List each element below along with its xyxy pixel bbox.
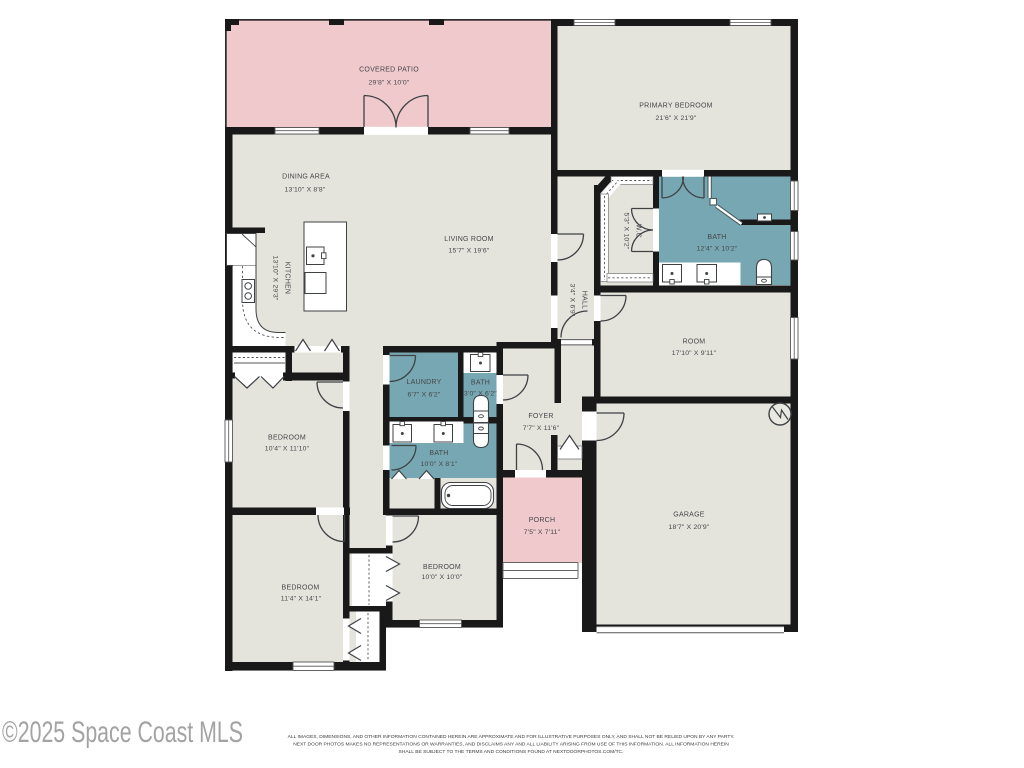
svg-text:BATH: BATH <box>471 380 490 387</box>
svg-text:10'0" X 8'1": 10'0" X 8'1" <box>420 461 457 468</box>
svg-text:10'4" X 11'10": 10'4" X 11'10" <box>265 446 310 453</box>
svg-text:SHALL BE SUBJECT TO THE TERMS: SHALL BE SUBJECT TO THE TERMS AND CONDIT… <box>399 749 624 755</box>
svg-text:7'7" X 11'6": 7'7" X 11'6" <box>523 425 560 432</box>
svg-text:PORCH: PORCH <box>529 517 556 524</box>
svg-text:7'5" X 7'11": 7'5" X 7'11" <box>524 529 561 536</box>
svg-text:KITCHEN: KITCHEN <box>284 262 291 294</box>
svg-text:COVERED PATIO: COVERED PATIO <box>359 67 419 74</box>
svg-text:NEXT DOOR PHOTOS MAKES NO REPR: NEXT DOOR PHOTOS MAKES NO REPRESENTATION… <box>293 742 729 748</box>
svg-text:13'10" X 8'8": 13'10" X 8'8" <box>284 187 325 194</box>
svg-text:FOYER: FOYER <box>528 413 553 420</box>
svg-text:LIVING ROOM: LIVING ROOM <box>444 236 493 243</box>
svg-text:DINING AREA: DINING AREA <box>282 174 330 181</box>
svg-text:3'0" X 6'2": 3'0" X 6'2" <box>464 391 497 398</box>
svg-text:21'6" X 21'9": 21'6" X 21'9" <box>655 115 696 122</box>
svg-text:BEDROOM: BEDROOM <box>268 435 306 442</box>
svg-text:HALL: HALL <box>581 291 588 310</box>
svg-text:10'0" X 10'0": 10'0" X 10'0" <box>421 574 462 581</box>
svg-text:BEDROOM: BEDROOM <box>282 585 320 592</box>
svg-text:5'3" X 10'2": 5'3" X 10'2" <box>623 212 630 249</box>
svg-text:W.C: W.C <box>635 224 642 238</box>
svg-text:LAUNDRY: LAUNDRY <box>406 379 441 386</box>
svg-text:ALL IMAGES, DIMENSIONS, AND OT: ALL IMAGES, DIMENSIONS, AND OTHER INFORM… <box>288 734 735 740</box>
svg-text:BATH: BATH <box>429 450 448 457</box>
svg-text:29'8" X 10'0": 29'8" X 10'0" <box>368 80 409 87</box>
svg-text:BATH: BATH <box>707 234 726 241</box>
svg-text:PRIMARY BEDROOM: PRIMARY BEDROOM <box>639 103 713 110</box>
svg-text:17'10" X 9'11": 17'10" X 9'11" <box>672 350 717 357</box>
svg-text:15'7" X 19'6": 15'7" X 19'6" <box>448 248 489 255</box>
svg-text:©2025 Space Coast MLS: ©2025 Space Coast MLS <box>2 716 243 749</box>
svg-text:12'4" X 10'2": 12'4" X 10'2" <box>696 246 737 253</box>
svg-text:13'10" X 29'3": 13'10" X 29'3" <box>272 256 279 301</box>
svg-text:GARAGE: GARAGE <box>673 512 705 519</box>
svg-text:11'4" X 14'1": 11'4" X 14'1" <box>281 596 322 603</box>
svg-text:ROOM: ROOM <box>683 339 706 346</box>
svg-text:6'7" X 6'2": 6'7" X 6'2" <box>407 392 440 399</box>
svg-text:18'7" X 20'9": 18'7" X 20'9" <box>668 524 709 531</box>
svg-text:3'4" X 6'9": 3'4" X 6'9" <box>569 283 576 316</box>
svg-text:BEDROOM: BEDROOM <box>423 564 461 571</box>
